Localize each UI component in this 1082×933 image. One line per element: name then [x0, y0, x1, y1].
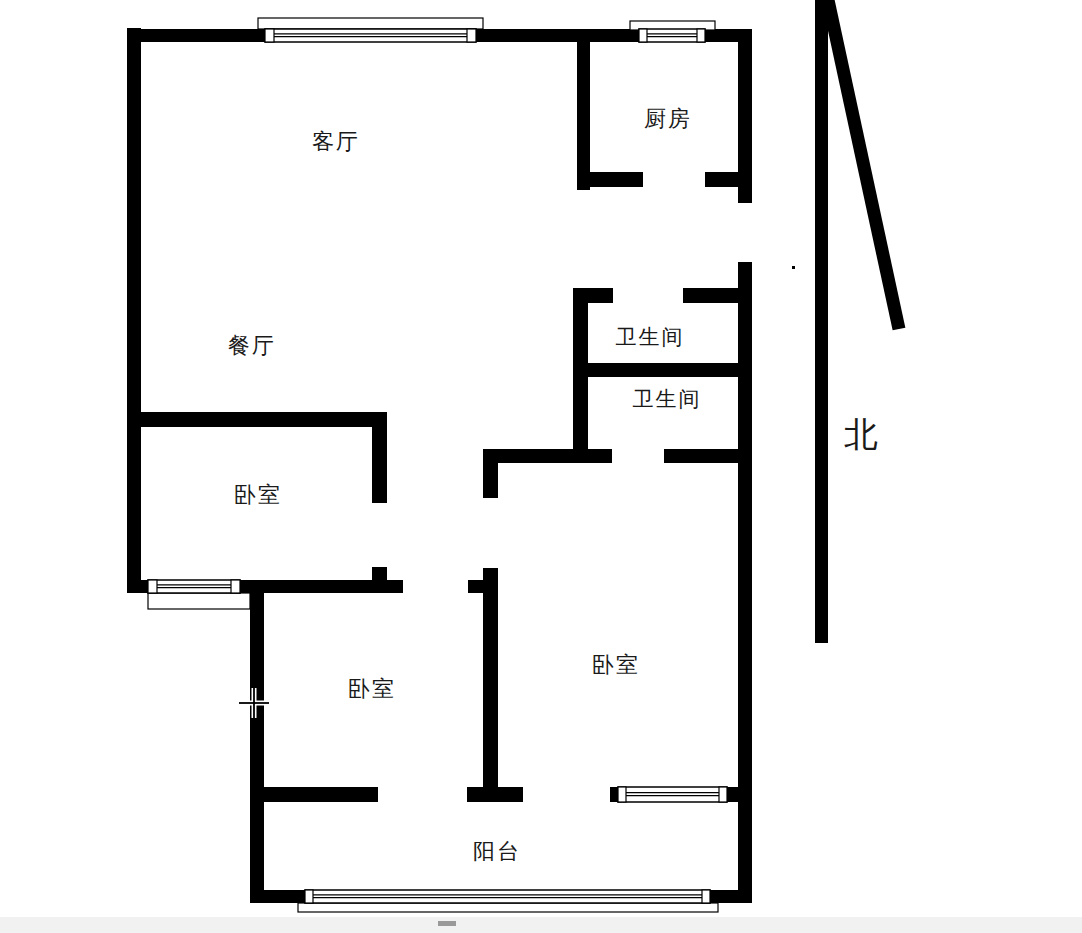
wall-exterior-top-b: [476, 29, 639, 42]
floorplan-canvas: 客厅厨房餐厅卫生间卫生间卧室卧室卧室阳台北: [0, 0, 1082, 933]
wall-bedroom2-door-tab: [468, 580, 483, 593]
window-frame-balcony-window: [298, 903, 718, 912]
wall-bedroom3-left-stub: [483, 449, 498, 498]
wall-exterior-right-upper: [738, 29, 752, 203]
window-mullion-living-room-window: [265, 29, 274, 42]
window-mullion-bedroom3-window: [618, 787, 626, 802]
wall-bathroom-bottom-a: [483, 449, 612, 463]
room-label-balcony: 阳台: [473, 839, 521, 864]
wall-bathroom-bottom-b: [664, 449, 738, 463]
window-living-room-window: [265, 29, 476, 42]
room-label-kitchen: 厨房: [644, 106, 692, 131]
window-kitchen-window: [639, 29, 705, 42]
window-mullion-bedroom1-window: [148, 580, 157, 593]
room-label-living-room: 客厅: [312, 129, 360, 154]
wall-kitchen-bottom-a: [577, 172, 643, 187]
wall-bedroom1-top: [127, 412, 387, 427]
floorplan-page: 客厅厨房餐厅卫生间卫生间卧室卧室卧室阳台北: [0, 0, 1082, 933]
window-mullion-kitchen-window: [639, 29, 647, 42]
wall-bathroom-top-a: [573, 288, 613, 303]
footer-bar: [0, 917, 1082, 933]
wall-bathroom-middle: [573, 363, 738, 377]
wall-exterior-bottom-a: [250, 890, 306, 903]
wall-bathroom-top-b: [683, 288, 738, 303]
wall-bedroom1-right-b: [372, 567, 387, 593]
north-label: 北: [844, 416, 878, 453]
room-label-bedroom-3: 卧室: [592, 652, 640, 677]
wall-kitchen-left: [577, 42, 590, 190]
wall-exterior-right-lower: [738, 262, 752, 903]
window-mullion-bedroom3-window: [719, 787, 727, 802]
room-label-bathroom-1: 卫生间: [616, 325, 685, 349]
room-label-bathroom-2: 卫生间: [633, 387, 702, 411]
window-frame-bedroom1-window: [148, 593, 250, 609]
wall-bedroom1-right-a: [372, 427, 387, 503]
wall-bedroom3-bottom-a: [610, 787, 618, 802]
window-mullion-kitchen-window: [697, 29, 705, 42]
window-mullion-balcony-window: [702, 890, 710, 903]
room-label-bedroom-1: 卧室: [234, 482, 282, 507]
wall-bedroom3-left: [483, 568, 498, 790]
wall-bedroom2-bottom: [250, 787, 378, 802]
window-mullion-balcony-window: [305, 890, 313, 903]
wall-speck-dot: [792, 266, 795, 269]
window-frame-living-room-window: [258, 18, 483, 29]
footer-dash: [438, 921, 456, 926]
window-balcony-window: [305, 890, 710, 903]
north-arrow-shaft: [815, 0, 828, 643]
window-bedroom3-window: [618, 787, 727, 802]
window-bedroom1-window: [148, 580, 240, 593]
plan-background: [0, 0, 1082, 933]
wall-bedroom2-bottom-block: [467, 787, 523, 802]
room-label-dining-room: 餐厅: [228, 333, 276, 358]
wall-lower-left-wall: [250, 580, 264, 903]
wall-exterior-top-a: [127, 29, 265, 42]
wall-kitchen-bottom-b: [705, 172, 738, 187]
room-label-bedroom-2: 卧室: [348, 676, 396, 701]
window-mullion-living-room-window: [467, 29, 476, 42]
window-mullion-bedroom1-window: [231, 580, 240, 593]
wall-exterior-bottom-b: [710, 890, 752, 903]
wall-bedroom3-bottom-b: [727, 787, 738, 802]
wall-exterior-left: [127, 28, 141, 593]
